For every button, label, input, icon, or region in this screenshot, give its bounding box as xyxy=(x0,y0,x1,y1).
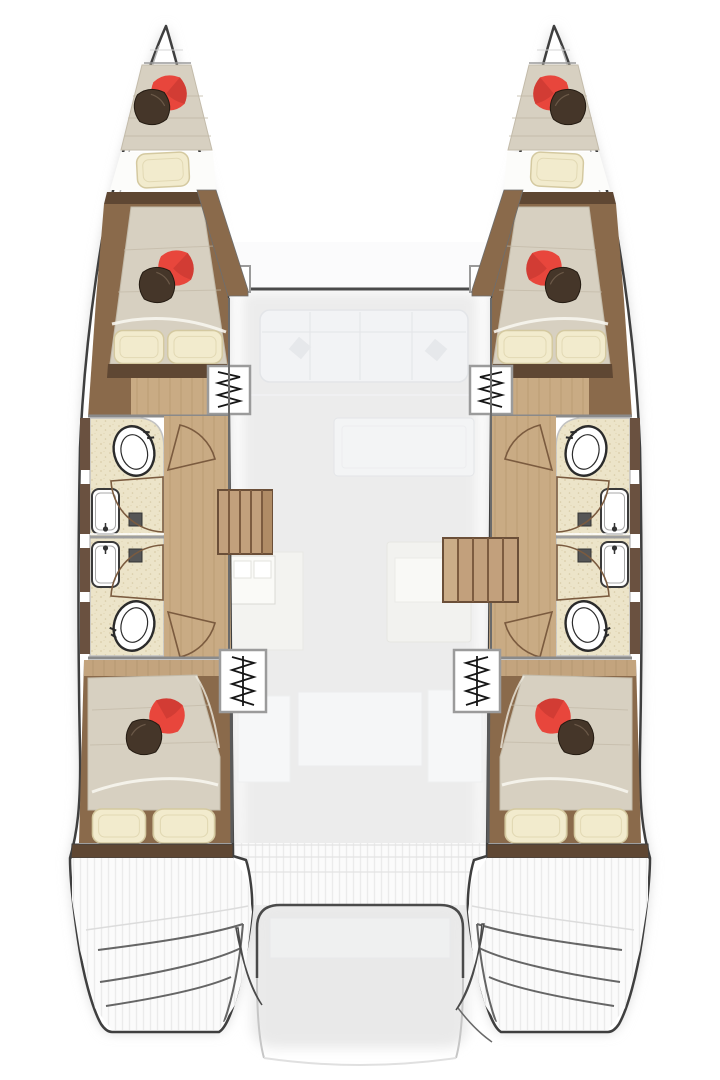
foredeck-wash xyxy=(230,242,490,287)
boat-floor-plan: Catamaran yacht interior layout — top-do… xyxy=(0,0,720,1080)
aft-deck xyxy=(233,843,487,905)
table-ghost xyxy=(334,418,474,476)
galley-ghost xyxy=(229,552,303,650)
cockpit-bench-ghost xyxy=(270,918,450,958)
stairs-left xyxy=(218,490,272,554)
platform-edge xyxy=(264,1058,456,1065)
floor-plan-page: Catamaran yacht interior layout — top-do… xyxy=(0,0,720,1080)
sofa-ghost xyxy=(260,310,468,382)
right-hull xyxy=(454,26,650,1034)
stairs-right xyxy=(443,538,518,602)
